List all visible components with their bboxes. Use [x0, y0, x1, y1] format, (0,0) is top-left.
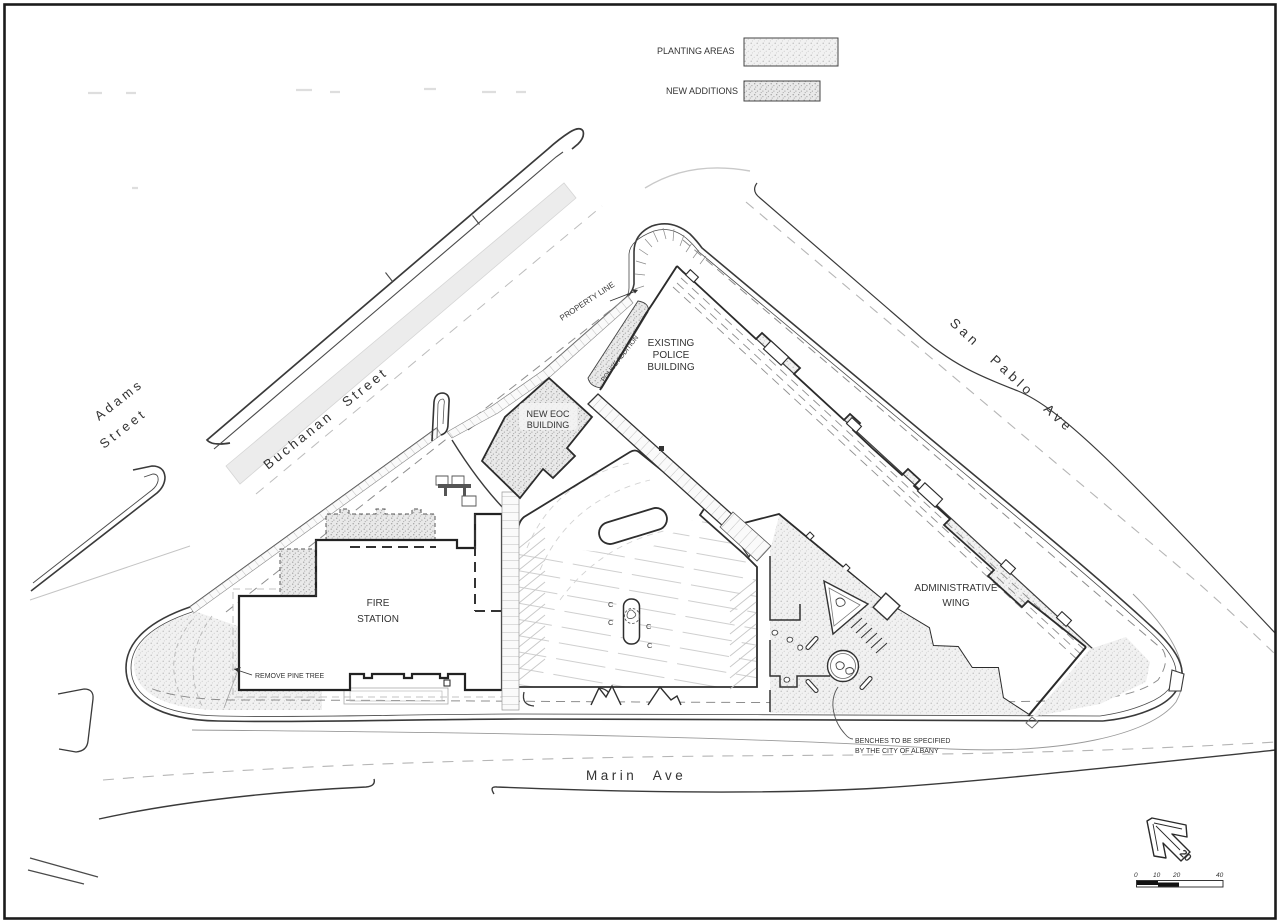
- svg-text:Marin Ave: Marin Ave: [586, 768, 686, 783]
- svg-text:0: 0: [1134, 872, 1138, 879]
- svg-text:NEW ADDITIONS: NEW ADDITIONS: [666, 86, 738, 96]
- svg-text:PLANTING AREAS: PLANTING AREAS: [657, 46, 735, 56]
- svg-text:ADMINISTRATIVE: ADMINISTRATIVE: [914, 583, 997, 594]
- svg-text:BUILDING: BUILDING: [647, 362, 694, 373]
- svg-text:C: C: [608, 618, 614, 627]
- svg-text:BUILDING: BUILDING: [527, 420, 570, 430]
- svg-text:C: C: [647, 641, 653, 650]
- svg-text:20: 20: [1172, 872, 1181, 879]
- svg-text:WING: WING: [942, 598, 969, 609]
- svg-text:STATION: STATION: [357, 614, 399, 625]
- svg-text:NEW EOC: NEW EOC: [526, 409, 570, 419]
- svg-text:BENCHES TO BE SPECIFIED: BENCHES TO BE SPECIFIED: [855, 738, 950, 745]
- svg-text:FIRE: FIRE: [367, 598, 390, 609]
- svg-text:POLICE: POLICE: [653, 350, 690, 361]
- svg-text:REMOVE PINE TREE: REMOVE PINE TREE: [255, 673, 324, 680]
- svg-text:10: 10: [1153, 872, 1161, 879]
- svg-text:BY THE CITY OF ALBANY: BY THE CITY OF ALBANY: [855, 748, 939, 755]
- svg-text:EXISTING: EXISTING: [648, 338, 695, 349]
- svg-text:C: C: [646, 622, 652, 631]
- svg-text:40: 40: [1216, 872, 1224, 879]
- svg-text:C: C: [608, 600, 614, 609]
